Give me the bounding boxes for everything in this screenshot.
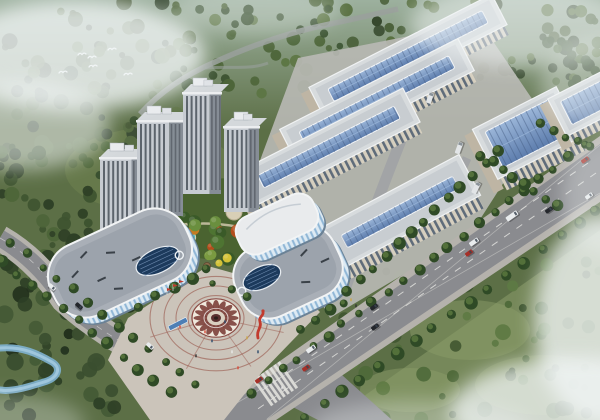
- screenshot-root: [0, 0, 600, 420]
- aerial-rendering-image: [0, 0, 600, 420]
- residential-tower: [136, 106, 191, 216]
